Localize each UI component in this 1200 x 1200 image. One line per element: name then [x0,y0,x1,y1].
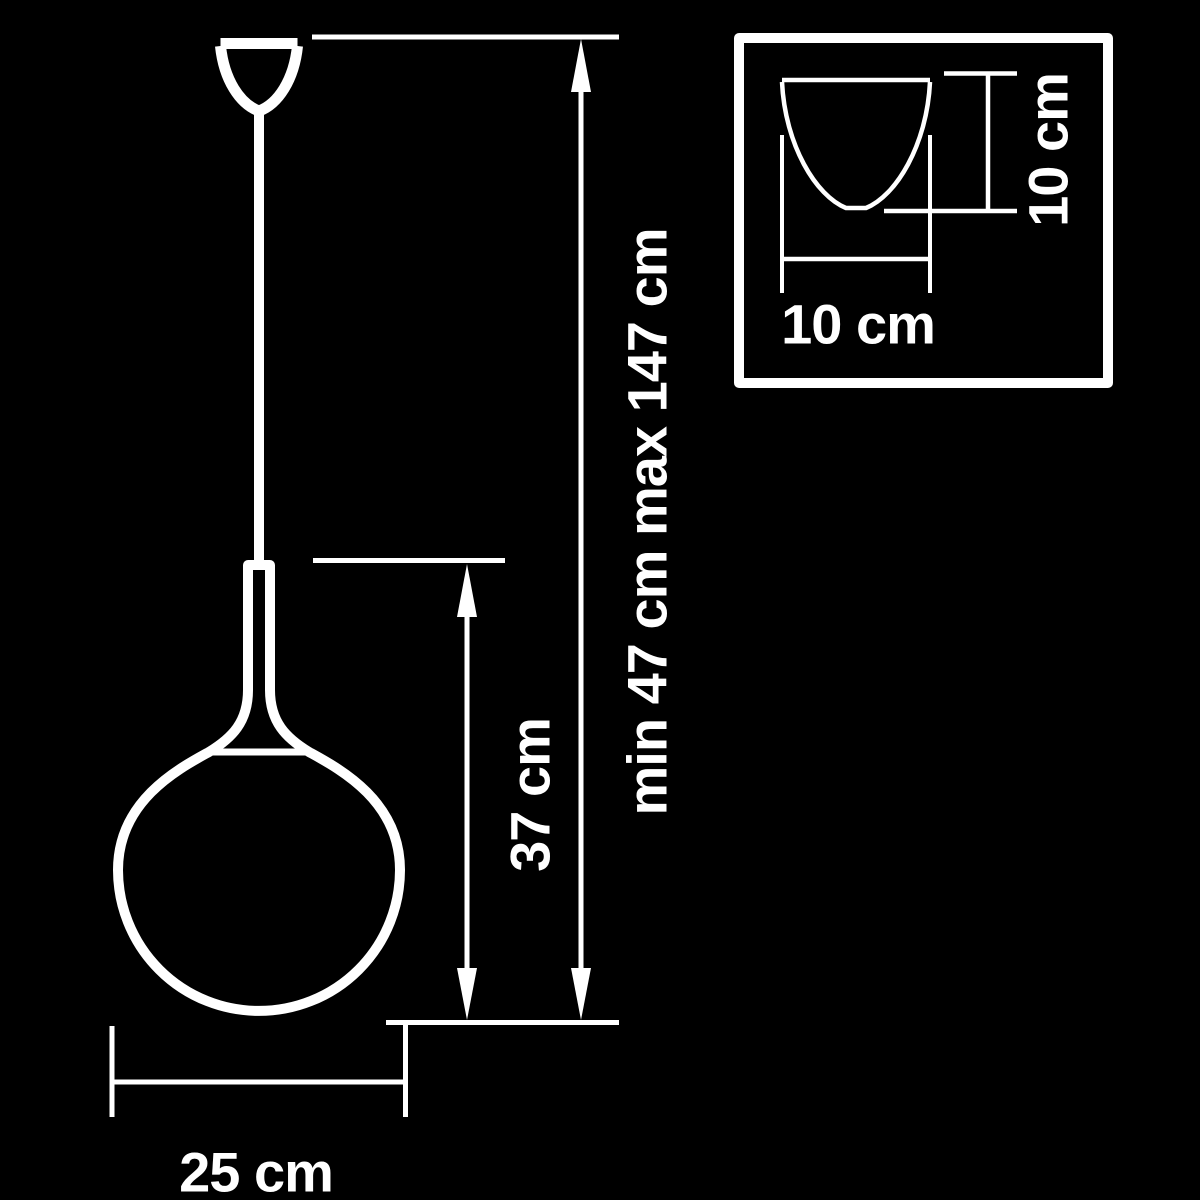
suspension-height-label: min 47 cm max 147 cm [616,228,679,815]
pendant-lamp-dimension-diagram: min 47 cm max 147 cm 37 cm 25 cm 10 cm 1… [0,0,1200,1200]
inset-canopy-width-label: 10 cm [781,293,935,356]
shade-height-label: 37 cm [499,718,562,872]
inset-canopy-height-label: 10 cm [1017,73,1080,227]
diagram-canvas: min 47 cm max 147 cm 37 cm 25 cm 10 cm 1… [0,0,1200,1200]
shade-diameter-label: 25 cm [179,1141,333,1200]
